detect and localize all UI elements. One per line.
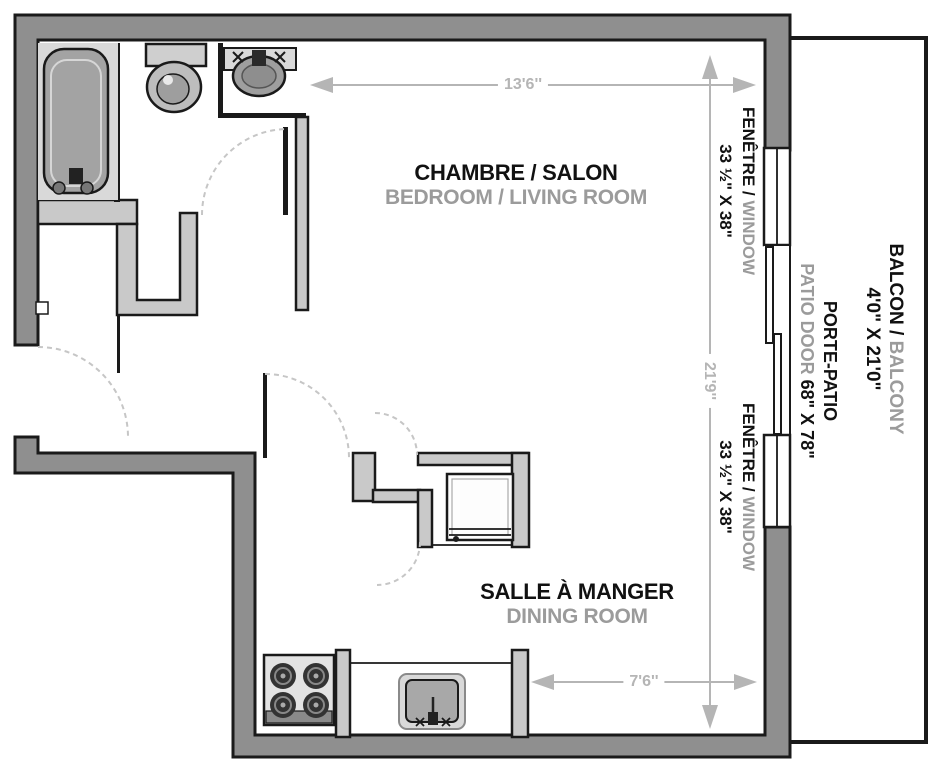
patio-door-label-fr: PORTE-PATIO [818, 263, 841, 458]
bedroom-living-room-label-fr: CHAMBRE / SALON [385, 160, 647, 185]
balcony-label-en: BALCONY [885, 341, 906, 435]
window-bottom-label-fr: FENÊTRE / [739, 403, 758, 492]
kitchen-pass-door-arc [377, 542, 420, 585]
balcony-label-fr: BALCON / [885, 243, 906, 335]
dining-room-label-en: DINING ROOM [480, 604, 674, 629]
door-hinge-notch [36, 302, 48, 314]
kitchen-door-arc [375, 413, 417, 455]
window-top [764, 148, 790, 245]
balcony-label: BALCON / BALCONY 4'0" X 21'0" [861, 243, 907, 434]
bedroom-living-room-label: CHAMBRE / SALON BEDROOM / LIVING ROOM [385, 160, 647, 210]
closet-walls [117, 213, 197, 315]
sink-alcove-wall [218, 43, 223, 117]
top-width-dimension: 13'6'' [498, 76, 548, 94]
hall-door-leaf [263, 373, 267, 458]
window-bottom-label: FENÊTRE / WINDOW 33 ½" X 38" [714, 403, 760, 571]
balcony-label-size: 4'0" X 21'0" [861, 243, 884, 434]
window-bottom-label-size: 33 ½" X 38" [714, 403, 737, 571]
kitchen-sink [399, 674, 465, 729]
bottom-width-dimension: 7'6'' [623, 673, 664, 691]
stove [264, 655, 334, 725]
dining-room-label-fr: SALLE À MANGER [480, 579, 674, 604]
entry-door-arc [38, 347, 128, 437]
bedroom-living-room-label-en: BEDROOM / LIVING ROOM [385, 185, 647, 210]
window-top-label-size: 33 ½" X 38" [714, 107, 737, 275]
patio-door-label: PORTE-PATIO PATIO DOOR 68" X 78" [795, 263, 841, 458]
closet-side-partition [117, 315, 120, 373]
dining-room-label: SALLE À MANGER DINING ROOM [480, 579, 674, 629]
window-top-label: FENÊTRE / WINDOW 33 ½" X 38" [714, 107, 760, 275]
window-top-label-en: WINDOW [739, 200, 758, 275]
hall-door-arc [265, 374, 349, 458]
patio-door-label-en: PATIO DOOR [797, 263, 817, 374]
floor-plan: CHAMBRE / SALON BEDROOM / LIVING ROOM SA… [0, 0, 950, 775]
bathtub [38, 43, 118, 200]
patio-door-label-size: 68" X 78" [797, 380, 817, 459]
window-bottom-label-en: WINDOW [739, 496, 758, 571]
window-top-label-fr: FENÊTRE / [739, 107, 758, 196]
refrigerator [447, 474, 513, 542]
right-height-dimension: 21'9'' [700, 354, 718, 408]
sink-alcove-wall-bottom [218, 113, 306, 118]
window-bottom [764, 435, 790, 527]
patio-door [764, 246, 789, 434]
bathroom-door-leaf [283, 127, 288, 215]
vanity-sink [224, 48, 296, 96]
bathroom-door-arc [202, 129, 288, 215]
toilet [146, 44, 206, 112]
exterior-walls [15, 15, 790, 757]
